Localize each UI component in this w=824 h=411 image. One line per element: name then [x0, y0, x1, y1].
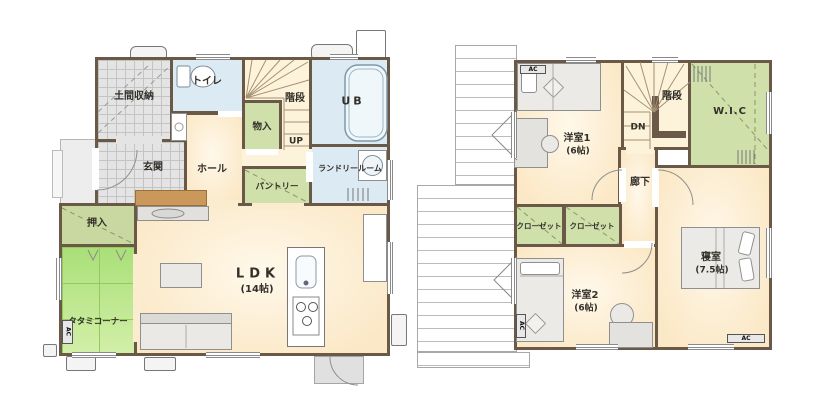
- label-pantry: パントリー: [256, 183, 299, 192]
- label-laundry: ランドリールーム: [318, 165, 382, 173]
- ac-outdoor-unit-2: [144, 357, 176, 371]
- label-yoshitsu1: 洋室1: [564, 134, 591, 144]
- tv-board: [137, 206, 209, 221]
- window-yoshitsu2-left: [511, 258, 517, 304]
- label-closet-1: クローゼット: [517, 222, 562, 230]
- ac-label-yoshitsu2: AC: [516, 314, 526, 338]
- window-ldk-bottom: [206, 352, 260, 358]
- pillow-yoshitsu2: [520, 262, 560, 275]
- label-stairs-1f: 階段: [285, 94, 305, 104]
- window-bedroom-bottom: [688, 344, 734, 350]
- opening-doma-genkan: [116, 136, 162, 144]
- label-ldk: LDK: [236, 268, 280, 281]
- vanity-sink: [171, 113, 187, 141]
- label-yoshitsu2: 洋室2: [572, 291, 599, 301]
- window-wic-right: [766, 92, 772, 134]
- label-oshiire: 押入: [87, 219, 107, 229]
- label-wic: W.I.C: [713, 107, 747, 117]
- entrance-step: [52, 150, 63, 198]
- roof-hatch-bottom: [417, 352, 530, 368]
- sofa-seat: [140, 323, 232, 350]
- label-ldk-size: (14帖): [240, 285, 273, 295]
- window-laundry-right: [387, 160, 393, 200]
- label-bedroom: 寝室: [701, 253, 721, 263]
- label-unit-bath: UB: [341, 96, 364, 107]
- water-heater-tank: [356, 30, 386, 60]
- window-toilet-top: [196, 54, 230, 60]
- window-ub-top: [330, 54, 358, 60]
- ac-outdoor-unit-1: [66, 356, 96, 371]
- label-stairs-2f: 階段: [662, 92, 682, 102]
- label-toilet: トイレ: [192, 77, 222, 87]
- ac-label-bedroom: AC: [727, 334, 765, 343]
- window-stairs2f-top: [652, 57, 678, 63]
- window-yoshitsu1-left: [511, 112, 517, 158]
- opening-pantry-ldk: [252, 203, 304, 210]
- door-gap-monoire: [246, 149, 278, 155]
- label-yoshitsu1-size: (6帖): [566, 148, 590, 157]
- meter-box: [43, 344, 57, 357]
- kitchen-counter: [287, 247, 325, 347]
- ac-label-tatami: AC: [62, 320, 73, 344]
- back-porch: [314, 356, 364, 384]
- label-monoire: 物入: [252, 122, 271, 132]
- ac-label-yoshitsu1: AC: [520, 65, 546, 74]
- ldk-table: [160, 263, 202, 288]
- opening-stairs-corridor: [626, 146, 654, 154]
- label-up: UP: [289, 138, 303, 147]
- label-dn: DN: [630, 124, 645, 133]
- door-gap-yoshitsu1: [619, 168, 626, 202]
- floor-plan-canvas: 土間収納 トイレ 階段 物入 UP UB ランドリールーム 玄関 ホール パント…: [0, 0, 824, 411]
- door-gap-laundry: [306, 152, 313, 182]
- ldk-desk-counter: [363, 214, 387, 282]
- window-tatami-left: [56, 258, 62, 300]
- door-gap-entrance: [92, 148, 99, 190]
- door-gap-bedroom: [652, 168, 659, 207]
- ac-outdoor-unit-right: [391, 314, 407, 346]
- roof-hatch-lower: [417, 185, 517, 352]
- genkan-step: [135, 190, 207, 206]
- window-ldk-right: [387, 242, 393, 294]
- stair-center-post-h: [652, 131, 686, 138]
- label-tatami-corner: タタミコーナー: [68, 318, 128, 327]
- roof-hatch-upper: [455, 45, 517, 185]
- window-yoshitsu1-top: [566, 57, 596, 63]
- window-yoshitsu2-bottom: [576, 344, 618, 350]
- label-closet-2: クローゼット: [570, 222, 615, 230]
- label-bedroom-size: (7.5帖): [695, 267, 728, 276]
- label-doma-storage: 土間収納: [114, 92, 154, 102]
- label-yoshitsu2-size: (6帖): [574, 305, 598, 314]
- door-gap-yoshitsu2: [624, 241, 654, 248]
- door-gap-toilet: [218, 111, 242, 117]
- label-hall: ホール: [197, 165, 227, 175]
- label-genkan: 玄関: [143, 163, 163, 173]
- label-corridor: 廊下: [630, 178, 650, 188]
- window-bedroom-right: [766, 228, 772, 278]
- window-tatami-bottom: [72, 352, 116, 358]
- chair-yoshitsu1: [541, 135, 559, 153]
